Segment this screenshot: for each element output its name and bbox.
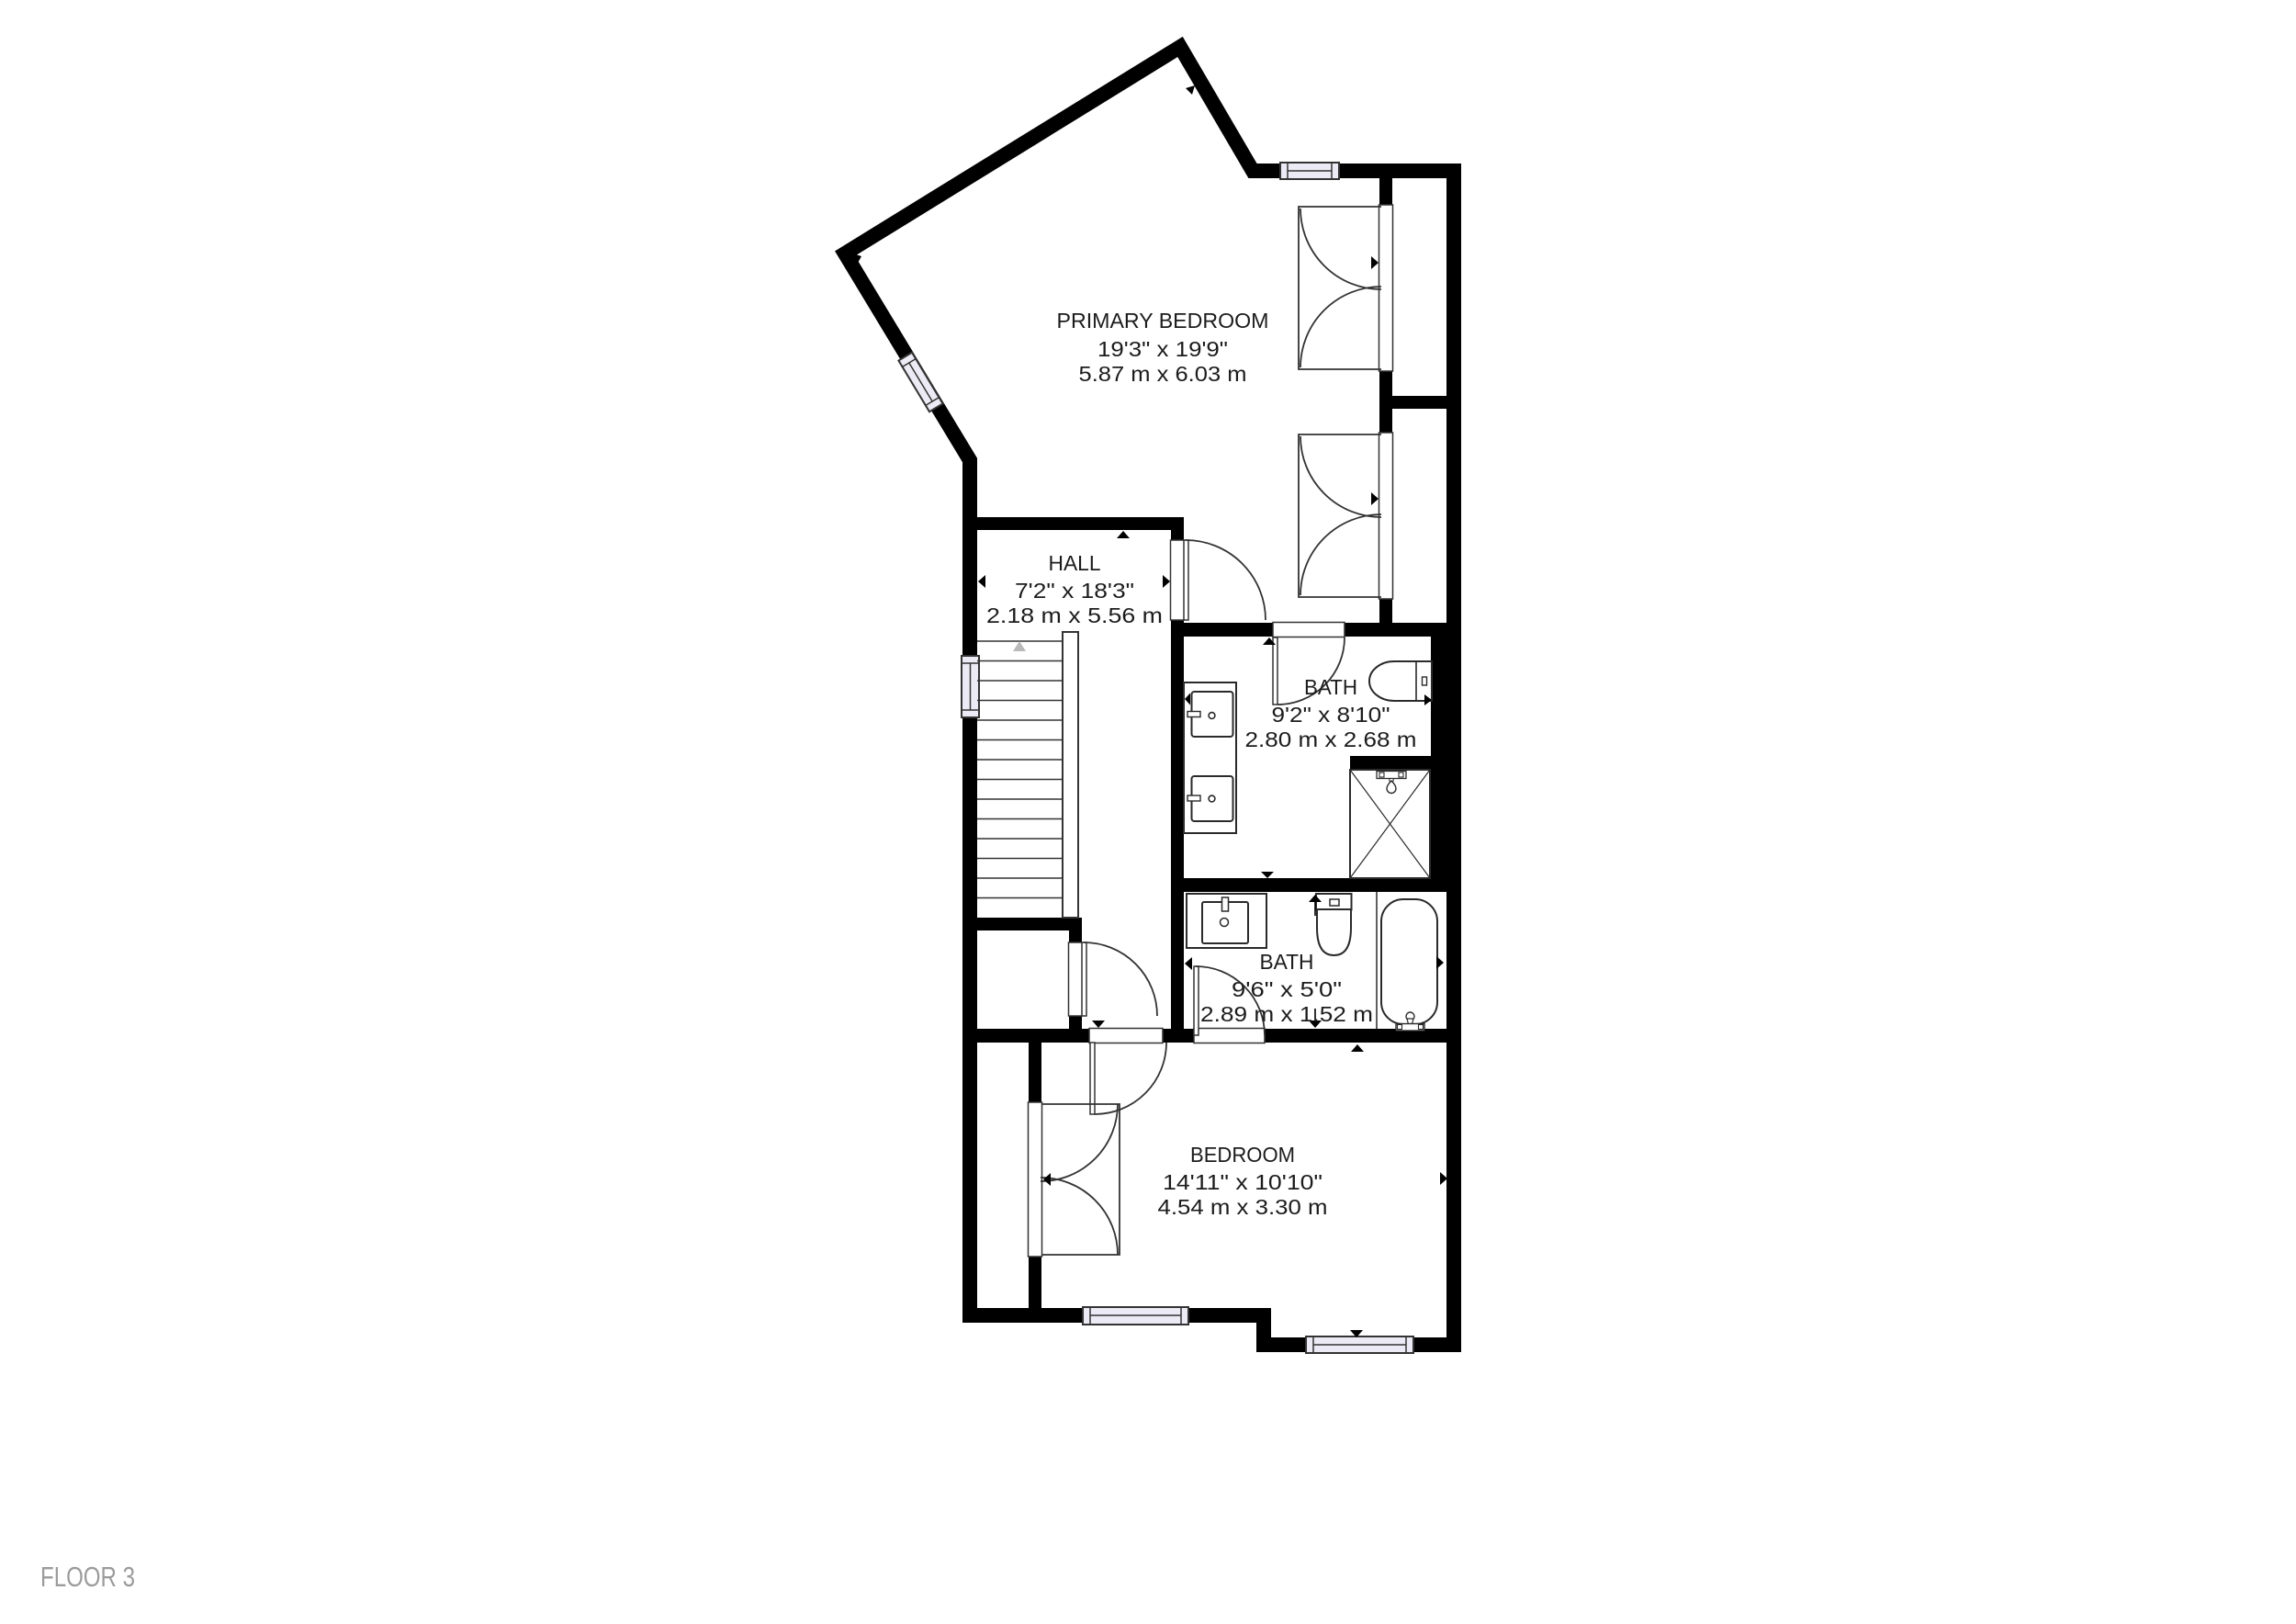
svg-text:2.89 m x 1.52 m: 2.89 m x 1.52 m [1200,1002,1373,1026]
svg-text:7'2" x 18'3": 7'2" x 18'3" [1015,579,1134,603]
svg-text:9'6" x 5'0": 9'6" x 5'0" [1232,977,1342,1001]
svg-text:PRIMARY BEDROOM: PRIMARY BEDROOM [1057,309,1269,333]
svg-text:2.18 m x 5.56 m: 2.18 m x 5.56 m [986,603,1163,627]
svg-text:HALL: HALL [1049,551,1101,575]
svg-text:BATH: BATH [1304,675,1357,699]
svg-text:5.87 m x 6.03 m: 5.87 m x 6.03 m [1079,362,1247,386]
svg-text:19'3" x 19'9": 19'3" x 19'9" [1097,337,1228,361]
svg-text:2.80 m x 2.68 m: 2.80 m x 2.68 m [1245,727,1417,751]
svg-text:4.54 m x 3.30 m: 4.54 m x 3.30 m [1158,1195,1328,1219]
svg-text:FLOOR 3: FLOOR 3 [40,1561,135,1593]
svg-text:14'11" x 10'10": 14'11" x 10'10" [1163,1170,1322,1194]
svg-text:9'2" x 8'10": 9'2" x 8'10" [1272,703,1390,727]
svg-text:BEDROOM: BEDROOM [1190,1143,1295,1167]
svg-text:BATH: BATH [1260,950,1314,974]
